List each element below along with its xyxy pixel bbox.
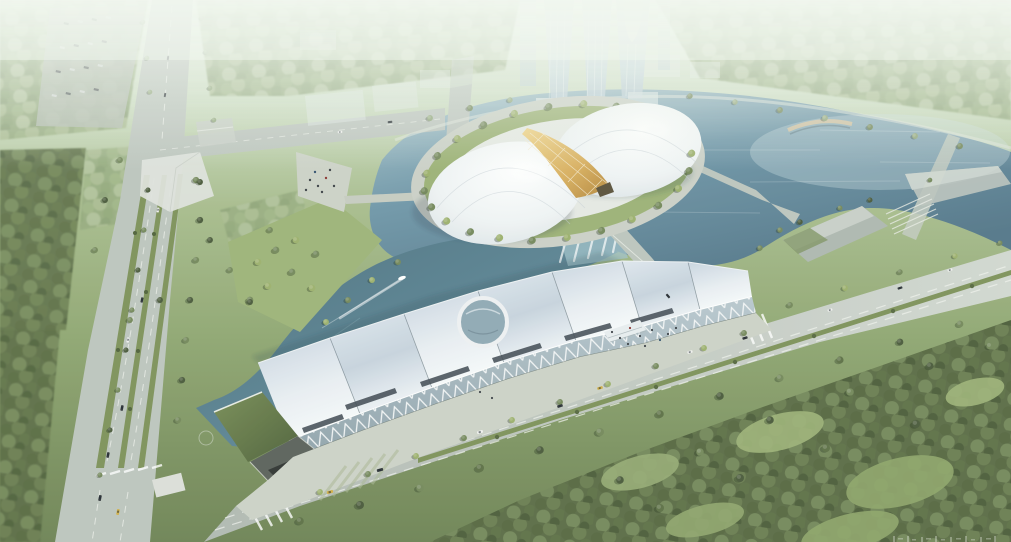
color-grade-tint: [0, 0, 1011, 542]
rendering-canvas: [0, 0, 1011, 542]
architectural-rendering: [0, 0, 1011, 542]
